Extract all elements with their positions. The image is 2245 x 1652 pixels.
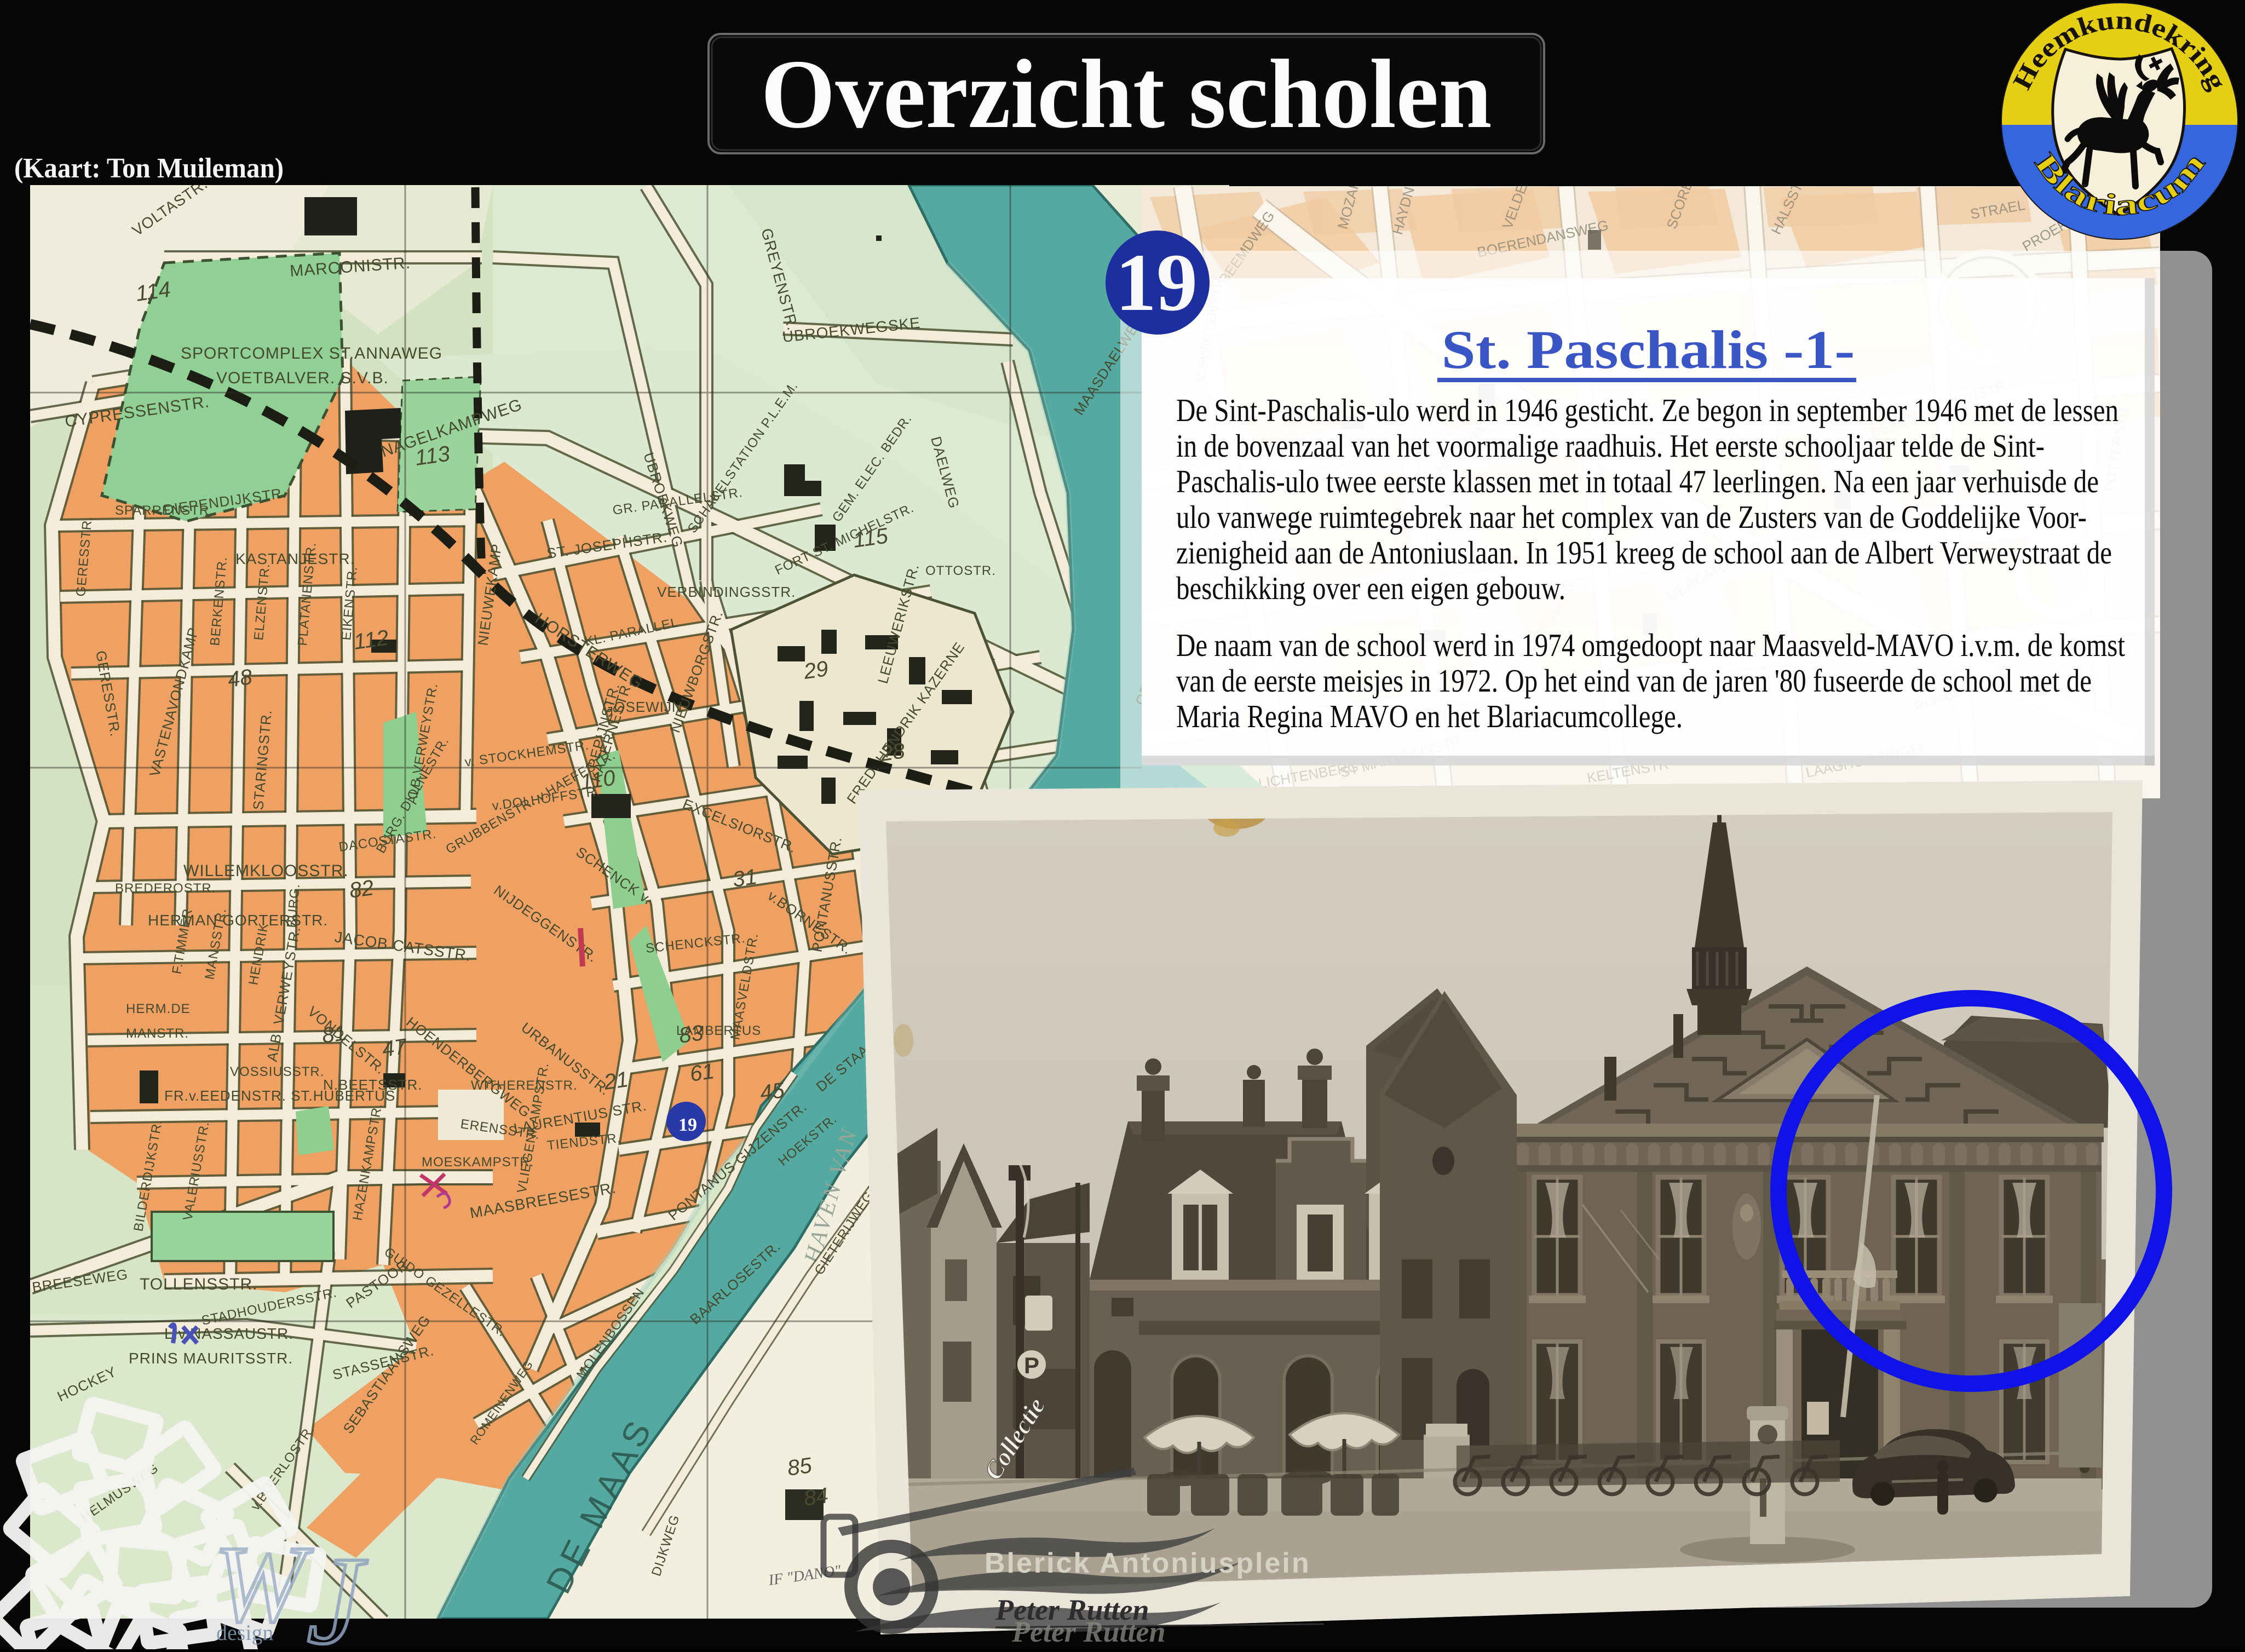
- svg-text:BREDEROSTR.: BREDEROSTR.: [115, 881, 216, 896]
- svg-text:31: 31: [731, 865, 758, 892]
- svg-text:83: 83: [677, 1021, 705, 1048]
- svg-text:19: 19: [678, 1115, 697, 1135]
- svg-text:De naam van de school werd in: De naam van de school werd in 1974 omged…: [1176, 627, 2126, 663]
- svg-text:De Sint-Paschalis-ulo werd in: De Sint-Paschalis-ulo werd in 1946 gesti…: [1176, 392, 2119, 428]
- svg-text:(Kaart: Ton Muileman): (Kaart: Ton Muileman): [14, 153, 284, 184]
- svg-text:112: 112: [352, 625, 390, 654]
- svg-text:61: 61: [688, 1059, 716, 1086]
- svg-text:HERM.DE: HERM.DE: [126, 1001, 191, 1016]
- svg-text:48: 48: [226, 665, 254, 692]
- svg-text:81: 81: [320, 1021, 348, 1048]
- svg-text:VOSSIUSSTR.: VOSSIUSSTR.: [230, 1064, 324, 1079]
- svg-text:113: 113: [413, 441, 451, 470]
- svg-text:114: 114: [134, 277, 172, 306]
- svg-text:29: 29: [802, 657, 830, 684]
- svg-text:MOESKAMPSTR.: MOESKAMPSTR.: [422, 1155, 534, 1170]
- svg-text:VOETBALVER. S.V.B.: VOETBALVER. S.V.B.: [216, 369, 389, 387]
- svg-text:TOLLENSSTR.: TOLLENSSTR.: [140, 1275, 258, 1293]
- svg-text:SPARRENSTR.: SPARRENSTR.: [115, 503, 214, 518]
- svg-text:WILLEMKLOOSSTR.: WILLEMKLOOSSTR.: [183, 862, 349, 880]
- svg-text:115: 115: [851, 523, 890, 552]
- svg-text:OTTOSTR.: OTTOSTR.: [925, 563, 996, 578]
- svg-text:21: 21: [602, 1067, 630, 1095]
- svg-text:FR.v.EEDENSTR. ST.HUBERTUS: FR.v.EEDENSTR. ST.HUBERTUS: [164, 1087, 395, 1104]
- svg-text:van de eerste meisjes in 1972.: van de eerste meisjes in 1972. Op het ei…: [1176, 663, 2092, 699]
- svg-text:84: 84: [802, 1483, 830, 1511]
- svg-text:design: design: [216, 1620, 273, 1645]
- svg-text:PRINS MAURITSSTR.: PRINS MAURITSSTR.: [129, 1350, 293, 1367]
- svg-text:HERMAN GORTERSTR.: HERMAN GORTERSTR.: [148, 912, 328, 929]
- svg-text:J: J: [307, 1530, 368, 1649]
- svg-text:MANSTR.: MANSTR.: [126, 1026, 189, 1041]
- svg-text:Blerick Antoniusplein: Blerick Antoniusplein: [985, 1547, 1311, 1579]
- svg-text:in de bovenzaal van het voorma: in de bovenzaal van het voormalige raadh…: [1176, 428, 2045, 464]
- svg-text:WITHERENSTR.: WITHERENSTR.: [471, 1078, 578, 1093]
- svg-text:ulo vanwege ruimtegebrek naar: ulo vanwege ruimtegebrek naar het comple…: [1176, 499, 2087, 535]
- svg-text:KASTANJESTR.: KASTANJESTR.: [235, 550, 355, 567]
- svg-text:SPORTCOMPLEX ST.ANNAWEG: SPORTCOMPLEX ST.ANNAWEG: [181, 344, 442, 362]
- svg-text:Peter Rutten: Peter Rutten: [1011, 1615, 1166, 1648]
- svg-text:28: 28: [878, 739, 907, 766]
- svg-text:zienigheid aan de Antoniuslaan: zienigheid aan de Antoniuslaan. In 1951 …: [1176, 534, 2112, 571]
- svg-text:85: 85: [786, 1453, 814, 1481]
- svg-text:beschikking over een eigen geb: beschikking over een eigen gebouw.: [1176, 570, 1565, 606]
- svg-text:82: 82: [348, 876, 375, 903]
- svg-text:VERBINDINGSSTR.: VERBINDINGSSTR.: [657, 584, 796, 600]
- svg-text:110: 110: [579, 765, 617, 794]
- svg-text:47: 47: [381, 1034, 409, 1062]
- svg-text:45: 45: [758, 1078, 786, 1106]
- svg-text:Maria Regina MAVO en het Blari: Maria Regina MAVO en het Blariacumcolleg…: [1176, 698, 1683, 734]
- svg-text:Overzicht scholen: Overzicht scholen: [761, 39, 1492, 148]
- svg-text:19: 19: [1115, 237, 1198, 328]
- svg-text:Paschalis-ulo twee eerste klas: Paschalis-ulo twee eerste klassen met in…: [1176, 463, 2099, 499]
- svg-text:St. Paschalis -1-: St. Paschalis -1-: [1442, 319, 1855, 380]
